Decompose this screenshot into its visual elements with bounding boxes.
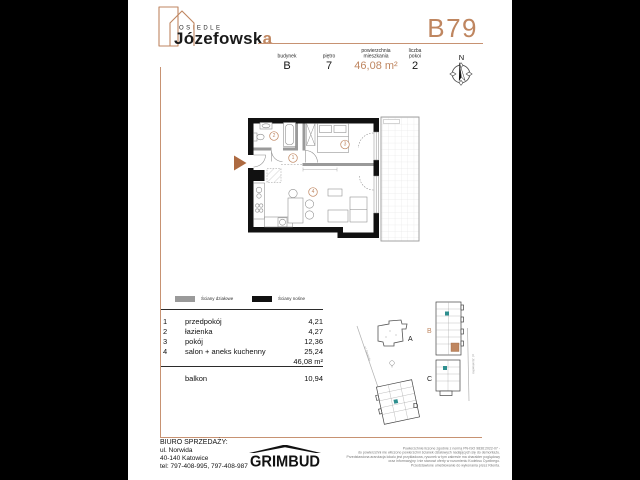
legend-label-partition: Ściany działowe — [201, 296, 233, 302]
kitchen — [254, 183, 293, 227]
dimension-line — [303, 168, 337, 172]
street-left-label: ul. Norwida — [363, 346, 372, 362]
compass-north-label: N — [459, 53, 464, 62]
info-value: 46,08 m² — [354, 60, 397, 72]
building-b-label: B — [427, 328, 432, 335]
legend-label-bearing: Ściany nośne — [278, 296, 305, 302]
row-area: 12,36 — [279, 337, 323, 346]
building-b — [436, 302, 464, 355]
building-c — [436, 360, 460, 396]
chair — [289, 189, 297, 197]
balcony-area: 10,94 — [279, 374, 323, 383]
entrance-arrow — [234, 156, 247, 171]
street-right-label: ul. Józefowska — [471, 354, 475, 374]
entrance-door — [254, 155, 266, 167]
bathroom-door — [272, 151, 283, 162]
table-row: 2 łazienka 4,27 — [161, 326, 323, 336]
marker-3: 3 — [344, 142, 347, 148]
unit-code: B79 — [426, 13, 478, 44]
disclaimer-line: Przedstawione umeblowanie do wykonania p… — [300, 464, 500, 468]
compass-icon: N — [443, 52, 479, 88]
estate-logo-line2: Józefowska — [174, 29, 272, 49]
logo-line2-main: Józefowsk — [174, 29, 263, 48]
living-set — [328, 189, 367, 222]
balcony-name: balkon — [177, 374, 279, 383]
info-label: liczba pokoi — [405, 47, 425, 59]
building-a-label: A — [408, 336, 413, 343]
marker-2: 2 — [273, 133, 276, 139]
row-name: łazienka — [177, 327, 279, 336]
sofa-chaise — [328, 210, 348, 222]
stove — [256, 204, 259, 207]
balcony-row: balkon 10,94 — [161, 373, 323, 383]
highlighted-unit — [451, 343, 459, 352]
sales-office-city: 40-140 Katowice — [160, 455, 248, 463]
disclaimer: Powierzchnie liczone zgodnie z normą PN-… — [300, 447, 500, 468]
street-right: ul. Józefowska — [468, 328, 476, 401]
building-c-label: C — [427, 376, 432, 383]
table-row: 3 pokój 12,36 — [161, 336, 323, 346]
marker-4: 4 — [312, 189, 315, 195]
flyer-page: OSIEDLE Józefowska B79 budynek B piętro … — [128, 0, 512, 480]
floor-plan: 1 2 3 4 — [231, 105, 421, 250]
row-name: przedpokój — [177, 317, 279, 326]
marker-1: 1 — [292, 155, 295, 161]
shaft-solid — [254, 170, 265, 181]
total-area: 46,08 m² — [279, 357, 323, 366]
row-area: 25,24 — [279, 347, 323, 356]
balcony-door-living — [360, 176, 374, 190]
table-divider-bottom — [161, 366, 323, 367]
info-value: 2 — [412, 60, 418, 72]
row-area: 4,27 — [279, 327, 323, 336]
chair — [305, 211, 313, 219]
bedroom-door — [306, 151, 318, 163]
info-value: 7 — [326, 60, 332, 72]
row-no: 4 — [161, 347, 177, 356]
row-no: 3 — [161, 337, 177, 346]
screenshot-root: { "colors": { "accent": "#bf8660", "entr… — [0, 0, 640, 480]
shaft-hatched — [267, 169, 281, 183]
sales-office-phone: tel: 797-408-995, 797-408-987 — [160, 463, 248, 471]
chair — [305, 200, 313, 208]
legend-swatch-partition — [175, 296, 195, 302]
wardrobe — [307, 124, 316, 146]
toilet — [254, 133, 258, 141]
row-area: 4,21 — [279, 317, 323, 326]
building-d-label: D — [413, 403, 418, 410]
info-value: B — [283, 60, 290, 72]
row-name: pokój — [177, 337, 279, 346]
info-label: piętro — [299, 47, 359, 59]
dining-table — [288, 198, 303, 223]
balcony-door-bedroom — [359, 133, 374, 148]
stairwell-marker — [393, 399, 398, 404]
legend-swatch-bearing — [252, 296, 272, 302]
sink — [256, 187, 262, 193]
row-name: salon + aneks kuchenny — [177, 347, 279, 356]
sales-office: BIURO SPRZEDAŻY: ul. Norwida 40-140 Kato… — [160, 438, 248, 471]
row-no: 2 — [161, 327, 177, 336]
table-row: 4 salon + aneks kuchenny 25,24 — [161, 346, 323, 356]
stairwell-marker — [445, 312, 449, 316]
balcony — [381, 117, 419, 241]
info-label: powierzchnia mieszkania — [359, 47, 394, 59]
area-table: 1 przedpokój 4,21 2 łazienka 4,27 3 pokó… — [161, 316, 323, 366]
table-total-row: 46,08 m² — [161, 356, 323, 366]
sales-office-title: BIURO SPRZEDAŻY: — [160, 438, 248, 447]
coffee-table — [328, 189, 342, 196]
tree-icon — [390, 361, 395, 368]
site-plan: ul. Norwida ul. Józefowska A B — [350, 298, 510, 435]
logo-line2-accent: a — [263, 29, 273, 48]
row-no: 1 — [161, 317, 177, 326]
sales-office-street: ul. Norwida — [160, 447, 248, 455]
stairwell-marker — [443, 366, 447, 370]
table-row: 1 przedpokój 4,21 — [161, 316, 323, 326]
table-divider-top — [161, 309, 323, 310]
building-a — [378, 320, 407, 346]
street-left: ul. Norwida — [357, 326, 381, 396]
